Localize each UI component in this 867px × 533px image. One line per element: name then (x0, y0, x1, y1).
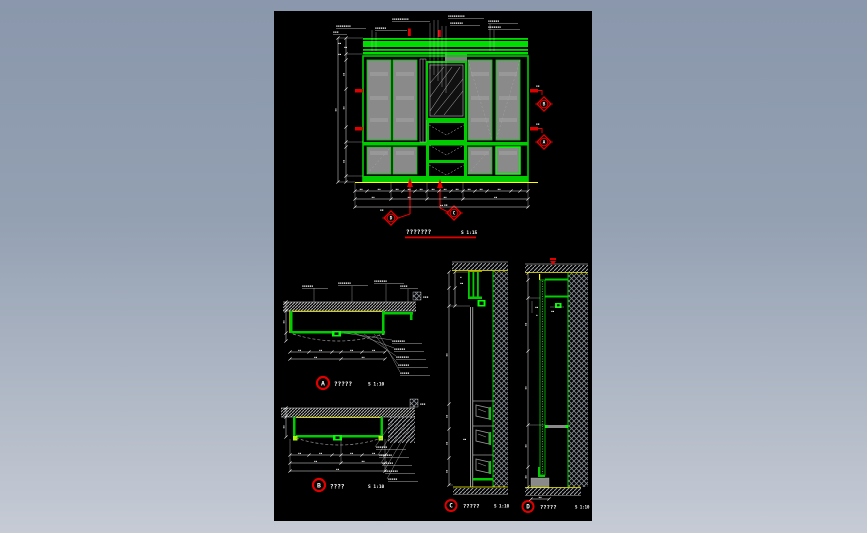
side-panel-line (472, 307, 473, 487)
dim-label: ▪▪ (342, 106, 346, 110)
dim-label: ▪▪ (479, 187, 483, 191)
section-title: ????? (463, 504, 480, 510)
detail-scale: S 1:10 (368, 484, 385, 490)
detail-b-drawing: ▪▪▪ B ???? S 1:10 (281, 399, 426, 491)
section-title: ????? (540, 505, 557, 511)
base-block (531, 478, 549, 488)
side-panel-line (470, 307, 471, 487)
dim-label: ▪▪ (538, 495, 542, 499)
leader-annotation: ▪▪▪▪▪▪▪ (488, 25, 501, 29)
section-cut-marker-a[interactable]: ▪▪ A (530, 122, 553, 149)
cornice-band (363, 38, 528, 55)
dim-label: ▪▪ (282, 320, 286, 324)
recess-profile-left (293, 417, 296, 437)
dim-label: ▪▪ (443, 187, 447, 191)
cad-drawing-svg: ▪▪ B ▪▪ A (274, 11, 592, 521)
cad-viewport[interactable]: ▪▪ B ▪▪ A (274, 11, 592, 521)
tiny-annotation: ▪▪ (338, 42, 342, 45)
dim-label: ▪▪ (440, 203, 444, 207)
dim-label: ▪▪ (298, 451, 302, 455)
dim-label: ▪▪ (372, 348, 376, 352)
dim-label: ▪▪ (524, 475, 528, 479)
upper-door-panel (393, 60, 417, 140)
dim-label: ▪▪ (445, 470, 449, 474)
recess-profile-right (381, 417, 384, 437)
dim-label: ▪▪ (350, 451, 354, 455)
leader-annotation: ▪▪▪▪▪▪ (382, 461, 393, 465)
leader-annotation: ▪▪▪▪▪▪▪▪ (336, 24, 351, 28)
leader-annotation: ▪▪▪▪ (400, 284, 408, 288)
bottom-shelf (473, 478, 493, 481)
leader-annotation: ▪▪▪▪▪▪▪ (385, 469, 398, 473)
leader-annotation: ▪▪▪▪▪▪▪ (392, 339, 405, 343)
corner-symbol-tag: ▪▪▪ (423, 295, 429, 299)
dim-label: ▪▪ (524, 386, 528, 390)
title-underline (405, 237, 476, 239)
leader-annotation: ▪▪▪▪▪ (400, 371, 409, 375)
cut-marker-tag: ▪▪ (536, 84, 540, 88)
dim-label: ▪▪ (445, 353, 449, 357)
detail-scale: S 1:10 (368, 382, 385, 388)
section-cut-marker-c[interactable]: ▪▪ C (437, 179, 463, 220)
leader-annotation: ▪▪▪▪▪▪▪ (374, 279, 387, 283)
tiny-annotation: ▪▪ (344, 46, 348, 49)
tiny-annotation: ▪▪ (463, 438, 467, 441)
dim-label: ▪▪ (342, 73, 346, 77)
cad-app-background: ▪▪ B ▪▪ A (0, 0, 867, 533)
red-tick-marker (438, 30, 441, 37)
section-scale: S 1:10 (575, 505, 590, 510)
leader-annotation: ▪▪▪▪▪▪▪▪▪ (392, 17, 409, 21)
leader-annotation: ▪▪▪▪▪▪▪ (450, 21, 463, 25)
mirror-panel (427, 62, 466, 119)
tiny-annotation: ▪ (536, 314, 538, 317)
dim-label: ▪▪ (467, 187, 471, 191)
tiny-annotation: ▪▪ (338, 53, 342, 56)
wall-hatch (568, 273, 588, 487)
red-edge-marker (355, 89, 363, 93)
ceiling-slab-hatch (452, 263, 508, 270)
section-cut-marker-d[interactable]: ▪▪ D (380, 178, 413, 225)
dim-label: ▪▪ (524, 444, 528, 448)
cut-marker-tag: ▪▪ (536, 122, 540, 126)
dim-label: ▪▪ (336, 467, 340, 471)
corner-symbol (410, 399, 418, 407)
leader-annotation: ▪▪▪▪▪▪ (376, 445, 387, 449)
dim-label: ▪▪ (319, 451, 323, 455)
cornice-profile (473, 272, 475, 298)
mid-shelf (545, 425, 568, 428)
cut-marker-tag: ▪▪ (380, 208, 384, 212)
dim-label: ▪▪ (445, 415, 449, 419)
floor-hatch (453, 488, 508, 494)
cornice-profile (468, 272, 470, 298)
red-tick-marker (408, 29, 411, 37)
dim-label: ▪▪ (372, 451, 376, 455)
top-shelf (545, 279, 568, 281)
leader-annotation: ▪▪▪▪▪▪▪▪▪ (448, 14, 465, 18)
section-d-drawing: D ????? S 1:10 (523, 258, 591, 512)
dim-label: ▪▪ (419, 187, 423, 191)
leader-annotation: ▪▪▪ (333, 30, 339, 34)
dim-label: ▪▪ (494, 195, 498, 199)
tiny-annotation: ▪▪ (460, 282, 464, 285)
leader-annotation: ▪▪▪▪▪▪ (398, 363, 409, 367)
leader-annotation: ▪▪▪▪▪▪▪ (379, 453, 392, 457)
dim-label: ▪▪ (377, 187, 381, 191)
drawer-rail (429, 120, 464, 123)
dim-label: ▪▪ (407, 195, 411, 199)
wall-hatch (493, 271, 508, 487)
dim-label: ▪▪ (298, 348, 302, 352)
elevation-title: ??????? (406, 229, 432, 236)
dim-label: ▪▪ (361, 459, 365, 463)
dim-label: ▪▪ (314, 355, 318, 359)
detail-letter: B (317, 481, 321, 489)
detail-title: ???? (330, 484, 345, 491)
leader-annotation: ▪▪▪▪▪▪▪ (338, 281, 351, 285)
leader-annotation: ▪▪▪▪▪ (388, 477, 397, 481)
dim-label: ▪▪ (395, 187, 399, 191)
tiny-annotation: ▪ (460, 276, 462, 279)
upper-door-panel (367, 60, 391, 140)
leader-annotation: ▪▪▪▪▪▪▪ (396, 355, 409, 359)
recess-profile-right (382, 311, 385, 335)
dim-label: ▪▪ (361, 355, 365, 359)
recess-profile-left (290, 311, 293, 333)
lower-door-panel-highlighted (496, 147, 520, 174)
cut-marker-letter: A (543, 140, 546, 146)
section-scale: S 1:10 (494, 504, 510, 509)
dim-label: ▪▪ (350, 348, 354, 352)
leader-annotation: ▪▪▪▪▪▪ (302, 284, 313, 288)
dim-label: ▪▪ (407, 187, 411, 191)
leader-annotation: ▪▪▪▪▪▪ (375, 26, 386, 30)
recess-profile-arm (384, 312, 413, 315)
ceiling-slab-hatch (525, 265, 588, 272)
floor-hatch (525, 488, 581, 495)
detail-letter: A (321, 379, 325, 387)
cut-marker-letter: D (390, 216, 393, 222)
red-edge-marker (355, 127, 363, 131)
dim-label: ▪▪ (497, 187, 501, 191)
dim-label: ▪▪ (359, 187, 363, 191)
bottom-rail (363, 176, 528, 182)
elevation-scale: S 1:15 (461, 230, 478, 236)
section-letter: D (526, 504, 530, 511)
ceiling-slab-hatch (283, 302, 416, 311)
dim-label: ▪▪ (524, 323, 528, 327)
dim-label: ▪▪ (334, 108, 338, 112)
dim-label: ▪▪ (282, 425, 286, 429)
section-cut-marker-b[interactable]: ▪▪ B (530, 84, 553, 111)
lower-door-panel (393, 147, 417, 174)
dim-label: ▪▪ (431, 187, 435, 191)
dim-label: ▪▪ (342, 160, 346, 164)
cut-marker-letter: B (543, 102, 546, 108)
drawer-rail (429, 140, 464, 143)
detail-title: ????? (334, 381, 352, 388)
dim-label: ▪▪ (314, 459, 318, 463)
tiny-annotation: ▪▪ (535, 306, 539, 309)
red-top-marker (550, 258, 556, 260)
top-shelf (545, 296, 568, 298)
leader-annotation: ▪▪▪▪▪▪ (394, 347, 405, 351)
cut-marker-letter: C (453, 211, 456, 217)
section-letter: C (449, 503, 453, 510)
dim-label: ▪▪ (445, 442, 449, 446)
corner-symbol-tag: ▪▪▪ (420, 402, 426, 406)
cornice-profile (477, 272, 479, 298)
dim-label: ▪▪ (455, 187, 459, 191)
dim-label: ▪▪ (319, 348, 323, 352)
cut-marker-tag: ▪▪ (444, 203, 448, 207)
dim-label: ▪▪ (371, 195, 375, 199)
ceiling-slab-hatch (281, 408, 415, 417)
dim-label: ▪▪ (443, 195, 447, 199)
corner-symbol (413, 292, 421, 300)
tiny-annotation: ▪▪ (551, 310, 555, 313)
drawer-rail (429, 160, 464, 163)
leader-annotation: ▪▪▪▪▪▪ (488, 19, 499, 23)
